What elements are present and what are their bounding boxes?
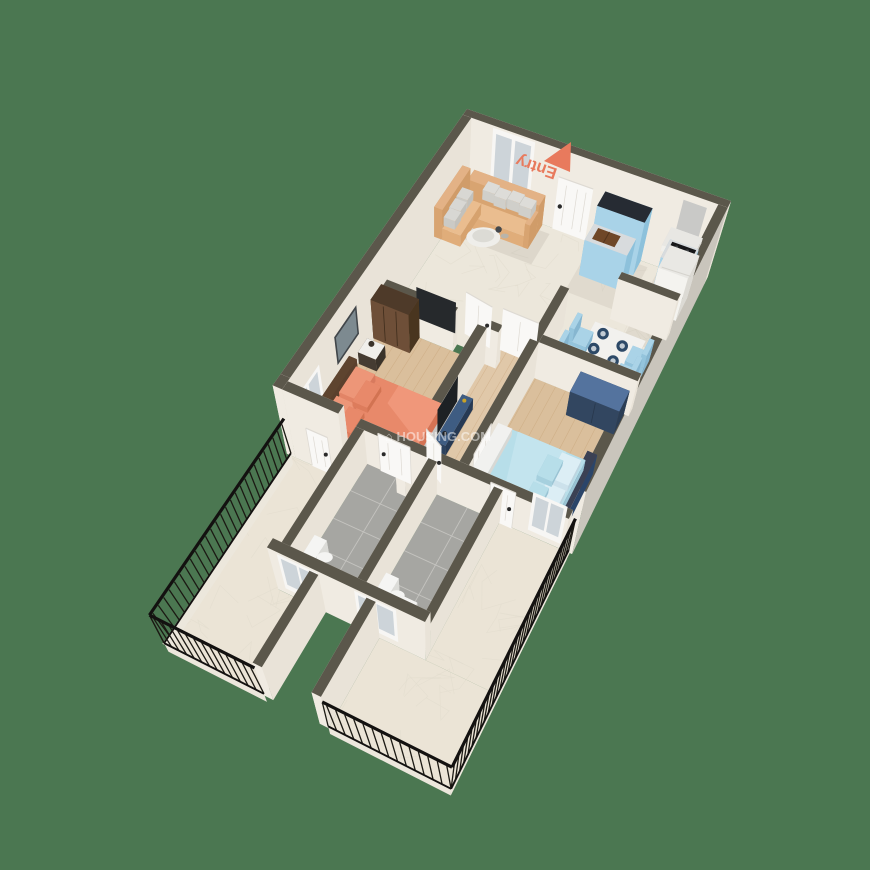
- svg-text:⌂ HOUSING.COM: ⌂ HOUSING.COM: [385, 429, 491, 444]
